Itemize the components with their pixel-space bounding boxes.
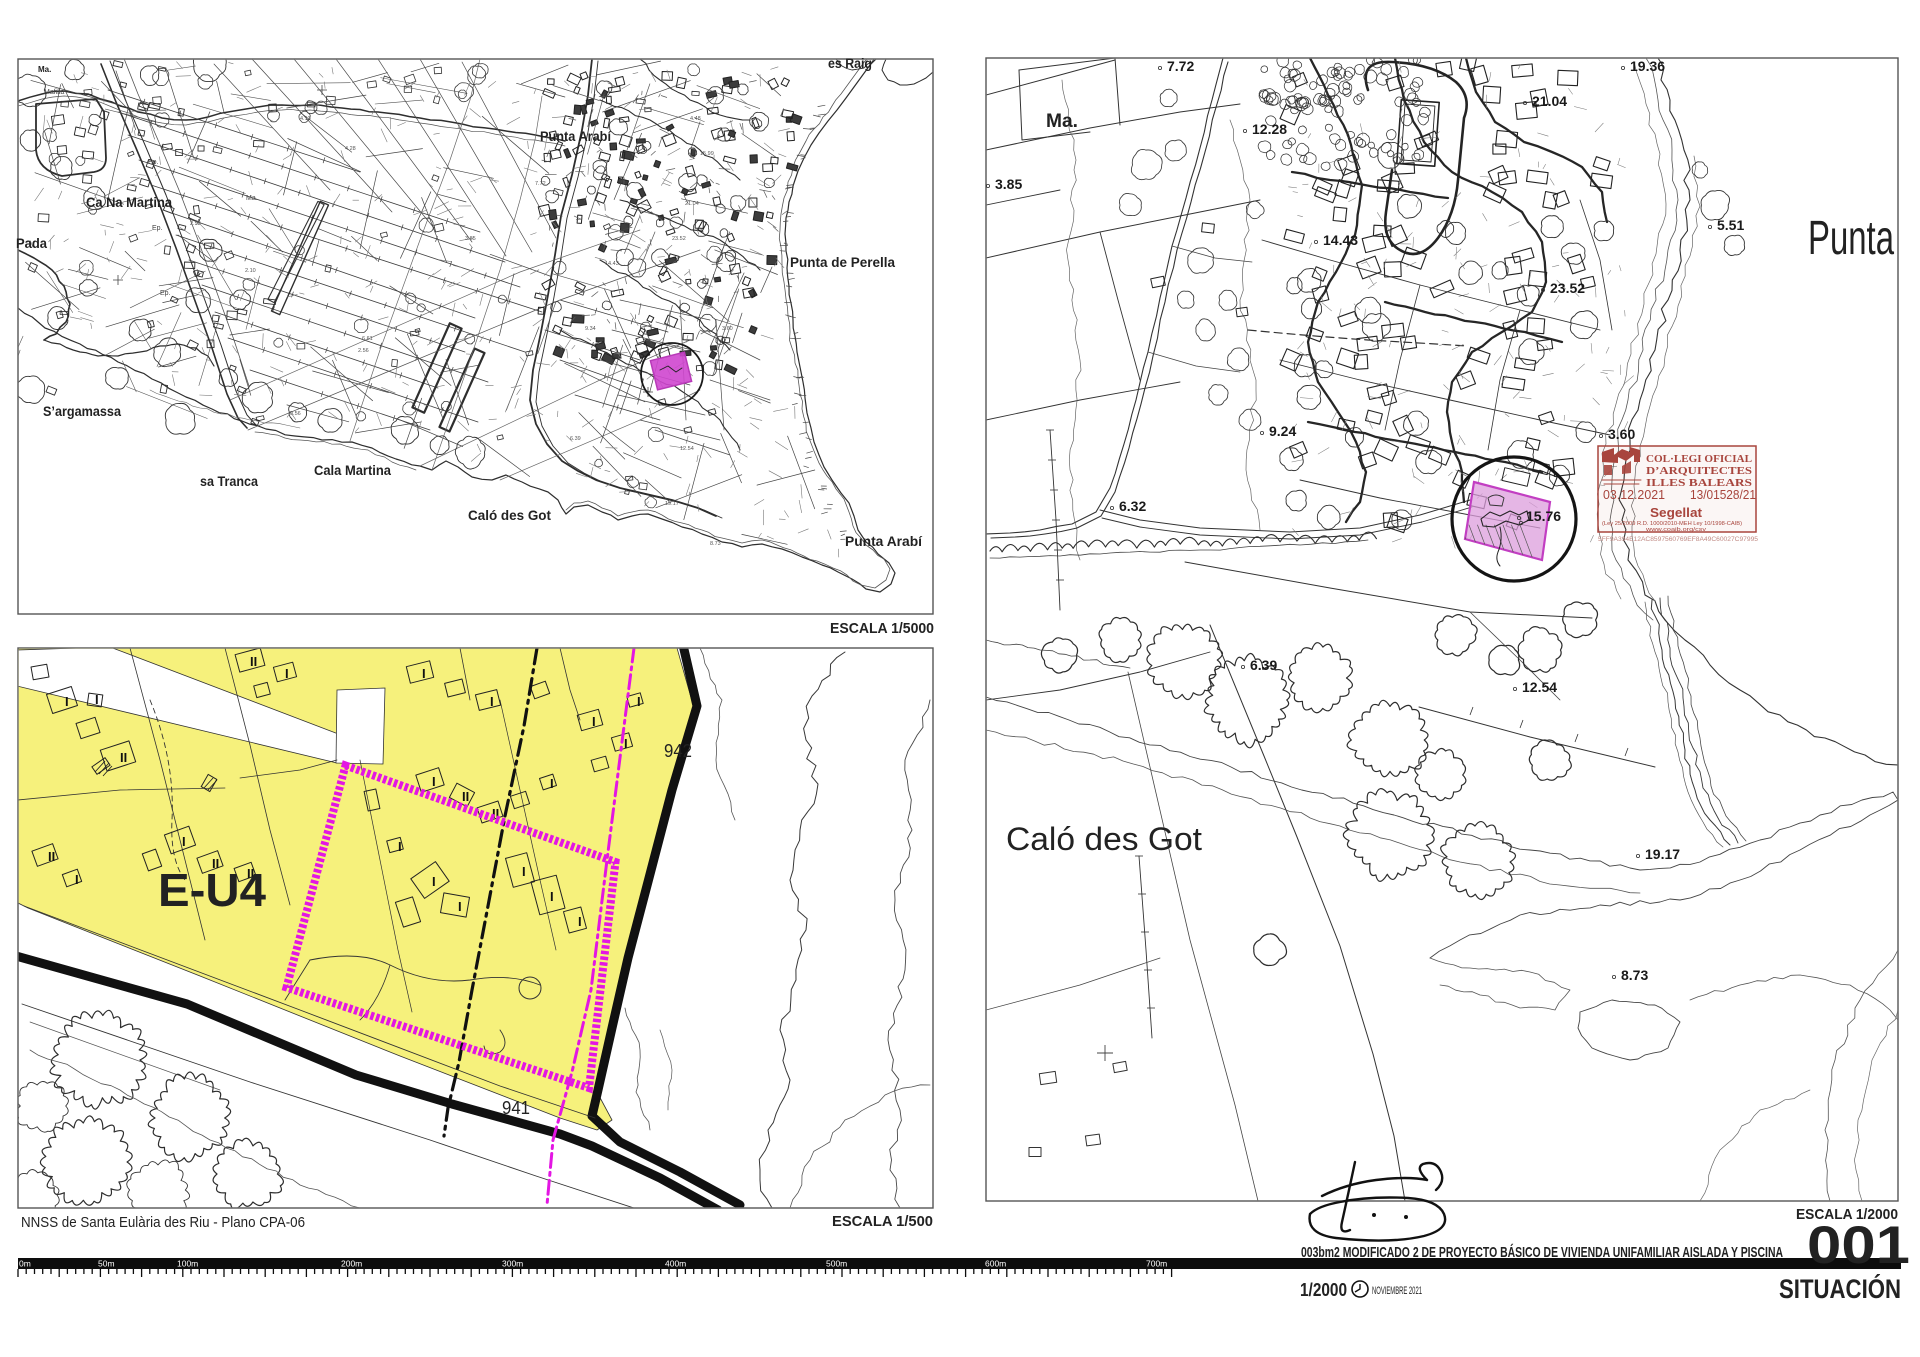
svg-text:NNSS de Santa Eulària des Riu: NNSS de Santa Eulària des Riu - Plano CP… bbox=[21, 1214, 305, 1231]
svg-text:I: I bbox=[398, 839, 402, 854]
svg-text:200m: 200m bbox=[341, 1259, 362, 1269]
svg-text:I: I bbox=[458, 899, 462, 914]
svg-text:4.28: 4.28 bbox=[345, 146, 356, 152]
svg-text:19.17: 19.17 bbox=[665, 501, 679, 507]
svg-text:12.28: 12.28 bbox=[1252, 121, 1287, 137]
svg-text:S’argamassa: S’argamassa bbox=[43, 404, 121, 419]
svg-text:II: II bbox=[250, 654, 257, 669]
svg-text:es Raig: es Raig bbox=[828, 56, 872, 71]
svg-text:I: I bbox=[95, 692, 99, 707]
svg-text:19.17: 19.17 bbox=[1645, 846, 1680, 862]
svg-text:300m: 300m bbox=[502, 1259, 523, 1269]
svg-text:3.60: 3.60 bbox=[1608, 426, 1635, 442]
svg-text:I: I bbox=[432, 774, 436, 789]
svg-text:8.73: 8.73 bbox=[710, 541, 721, 547]
svg-text:E-U4: E-U4 bbox=[158, 864, 266, 916]
svg-text:SITUACIÓN: SITUACIÓN bbox=[1779, 1273, 1901, 1304]
svg-text:sa Tranca: sa Tranca bbox=[200, 474, 258, 489]
svg-text:5FF9A394E12AC8597560769EF8A49C: 5FF9A394E12AC8597560769EF8A49C60027C9799… bbox=[1598, 537, 1759, 543]
svg-text:3.85: 3.85 bbox=[995, 176, 1022, 192]
svg-text:2.58: 2.58 bbox=[190, 221, 201, 227]
svg-text:Segellat: Segellat bbox=[1650, 505, 1703, 520]
svg-text:15.99: 15.99 bbox=[700, 151, 714, 157]
svg-text:D’ARQUITECTES: D’ARQUITECTES bbox=[1646, 465, 1752, 477]
svg-text:COL·LEGI OFICIAL: COL·LEGI OFICIAL bbox=[1646, 453, 1752, 465]
svg-text:I: I bbox=[422, 666, 426, 681]
svg-text:23.52: 23.52 bbox=[672, 236, 686, 242]
svg-text:Punta de Perella: Punta de Perella bbox=[790, 255, 895, 270]
svg-text:6.61: 6.61 bbox=[362, 336, 373, 342]
svg-text:I: I bbox=[65, 694, 69, 709]
svg-text:Ma.: Ma. bbox=[1046, 111, 1078, 132]
svg-text:6.39: 6.39 bbox=[570, 436, 581, 442]
svg-text:600m: 600m bbox=[985, 1259, 1006, 1269]
svg-text:II: II bbox=[120, 750, 127, 765]
svg-text:9.24: 9.24 bbox=[1269, 423, 1296, 439]
svg-text:12.54: 12.54 bbox=[1522, 679, 1557, 695]
svg-text:I: I bbox=[522, 864, 526, 879]
svg-text:2.10: 2.10 bbox=[245, 268, 256, 274]
svg-text:13/01528/21: 13/01528/21 bbox=[1690, 487, 1756, 502]
svg-text:www.coaib.org/csv: www.coaib.org/csv bbox=[1646, 527, 1707, 533]
svg-text:0.56: 0.56 bbox=[290, 411, 301, 417]
svg-text:50m: 50m bbox=[98, 1259, 115, 1269]
svg-text:03.12.2021: 03.12.2021 bbox=[1603, 487, 1665, 502]
svg-text:I: I bbox=[75, 872, 79, 887]
svg-text:I: I bbox=[550, 889, 554, 904]
svg-text:II: II bbox=[48, 849, 55, 864]
svg-text:100m: 100m bbox=[177, 1259, 198, 1269]
svg-text:I: I bbox=[490, 694, 494, 709]
svg-text:941: 941 bbox=[502, 1098, 530, 1118]
svg-text:12.54: 12.54 bbox=[680, 446, 694, 452]
svg-text:0m: 0m bbox=[19, 1259, 31, 1269]
svg-text:001: 001 bbox=[1807, 1216, 1910, 1275]
svg-text:3.60: 3.60 bbox=[722, 326, 733, 332]
svg-text:I: I bbox=[592, 714, 596, 729]
svg-text:Caló des Got: Caló des Got bbox=[468, 508, 551, 523]
svg-text:14.43: 14.43 bbox=[1323, 232, 1358, 248]
svg-text:Ma.: Ma. bbox=[246, 195, 258, 202]
svg-text:I: I bbox=[182, 834, 186, 849]
svg-text:15.76: 15.76 bbox=[1526, 508, 1561, 524]
svg-text:I: I bbox=[578, 914, 582, 929]
svg-text:942: 942 bbox=[664, 741, 692, 761]
svg-text:Punta Arabí: Punta Arabí bbox=[845, 534, 923, 549]
svg-text:ESCALA 1/500: ESCALA 1/500 bbox=[832, 1213, 933, 1230]
svg-text:21.04: 21.04 bbox=[1532, 93, 1567, 109]
svg-text:14.43: 14.43 bbox=[605, 261, 619, 267]
svg-text:4.13: 4.13 bbox=[300, 116, 311, 122]
svg-text:2.56: 2.56 bbox=[358, 348, 369, 354]
svg-text:Punta: Punta bbox=[1808, 212, 1894, 265]
svg-text:Ep.: Ep. bbox=[160, 290, 171, 297]
svg-text:Punta Arabí: Punta Arabí bbox=[540, 129, 612, 144]
svg-text:1/2000: 1/2000 bbox=[1300, 1280, 1347, 1300]
svg-text:Cala Martina: Cala Martina bbox=[314, 463, 391, 478]
svg-text:003bm2 MODIFICADO 2 DE PROYE: 003bm2 MODIFICADO 2 DE PROYECTO BÁSICO D… bbox=[1301, 1244, 1783, 1261]
svg-text:9.34: 9.34 bbox=[585, 326, 596, 332]
svg-text:Ca Na Martina: Ca Na Martina bbox=[86, 194, 172, 210]
svg-text:500m: 500m bbox=[826, 1259, 847, 1269]
svg-text:Mafilla: Mafilla bbox=[44, 89, 64, 96]
svg-text:7.72: 7.72 bbox=[535, 181, 546, 187]
svg-text:8.73: 8.73 bbox=[1621, 967, 1648, 983]
svg-text:3.85: 3.85 bbox=[465, 236, 476, 242]
svg-text:I: I bbox=[432, 874, 436, 889]
svg-text:I: I bbox=[550, 776, 554, 791]
svg-text:Caló des Got: Caló des Got bbox=[1006, 821, 1202, 857]
svg-text:5.51: 5.51 bbox=[1717, 217, 1744, 233]
svg-text:400m: 400m bbox=[665, 1259, 686, 1269]
svg-text:NOVIEMBRE 2021: NOVIEMBRE 2021 bbox=[1372, 1285, 1422, 1297]
svg-text:I: I bbox=[624, 736, 628, 751]
svg-text:Ep.: Ep. bbox=[152, 225, 163, 232]
svg-text:21.04: 21.04 bbox=[685, 201, 699, 207]
svg-text:700m: 700m bbox=[1146, 1259, 1167, 1269]
svg-text:19.36: 19.36 bbox=[1630, 58, 1665, 74]
svg-text:Pada: Pada bbox=[16, 235, 47, 251]
svg-text:I: I bbox=[285, 666, 289, 681]
svg-text:Ma.: Ma. bbox=[38, 65, 51, 74]
svg-text:6.32: 6.32 bbox=[1119, 498, 1146, 514]
svg-text:23.52: 23.52 bbox=[1550, 280, 1585, 296]
svg-text:Ep.: Ep. bbox=[148, 159, 159, 166]
svg-text:ESCALA 1/5000: ESCALA 1/5000 bbox=[830, 620, 934, 637]
svg-text:II: II bbox=[462, 789, 469, 804]
svg-text:6.39: 6.39 bbox=[1250, 657, 1277, 673]
svg-text:7.72: 7.72 bbox=[1167, 58, 1194, 74]
svg-text:4.48: 4.48 bbox=[690, 116, 701, 122]
svg-text:I: I bbox=[637, 694, 641, 709]
